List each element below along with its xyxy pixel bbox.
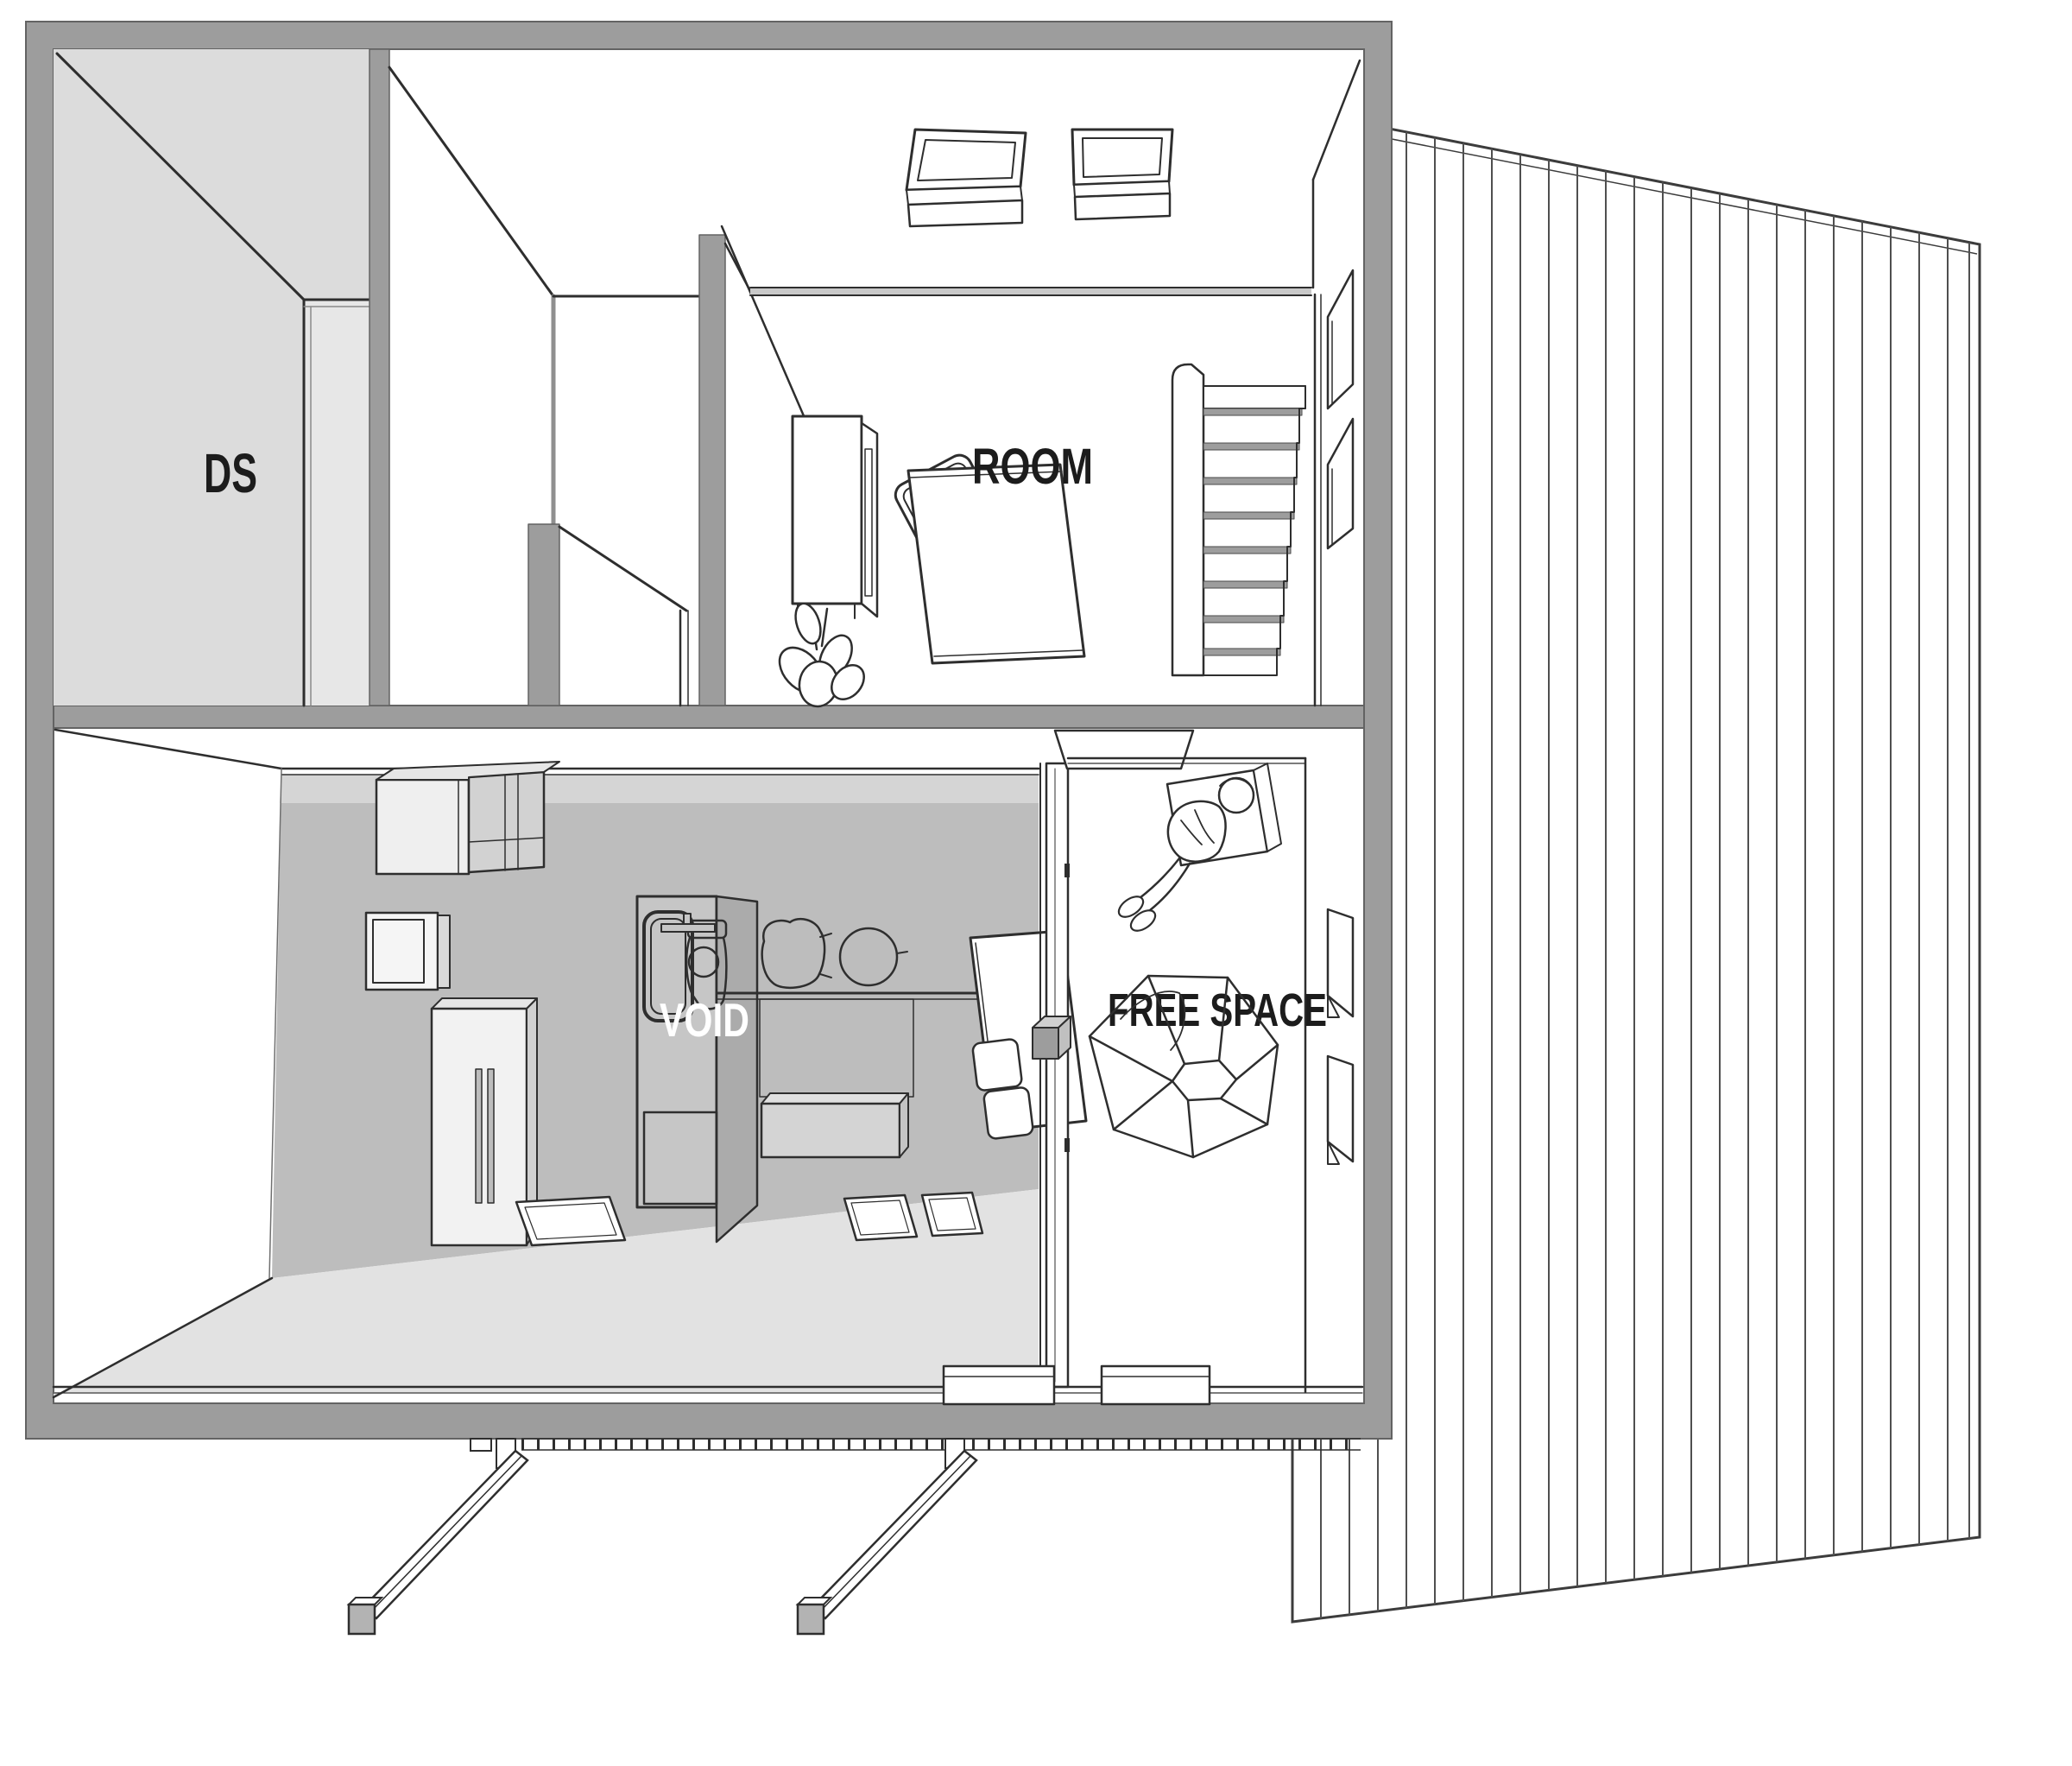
counter-drawer <box>761 1093 908 1157</box>
person-torso <box>1168 801 1226 862</box>
door-handle <box>1033 1016 1071 1059</box>
stair-rail <box>1172 364 1203 675</box>
floor-plan-drawing: ROOM DS <box>0 0 2072 1766</box>
wall-ds-divider <box>370 49 389 706</box>
desk <box>793 416 877 618</box>
wall-frame <box>366 913 450 990</box>
slatted-screen-wall <box>1292 110 1980 1622</box>
room-label-bedroom: ROOM <box>972 439 1093 495</box>
wall-cabinets <box>376 762 559 874</box>
support-leg-right <box>798 1451 976 1634</box>
room-label-void: VOID <box>660 993 749 1047</box>
room-label-ds: DS <box>204 442 257 504</box>
support-leg-left <box>349 1451 527 1634</box>
pillow <box>983 1086 1033 1139</box>
door-panel <box>1046 763 1068 1387</box>
skylight-right <box>1072 130 1172 219</box>
bathroom-unit: VOID <box>637 896 757 1242</box>
mid-floor-slab <box>54 706 1364 728</box>
leg-foot <box>349 1605 375 1634</box>
room-label-free-space: FREE SPACE <box>1108 984 1327 1036</box>
hall-door-wall <box>528 524 559 706</box>
ds-room <box>54 49 370 706</box>
floor-plan-canvas: ROOM DS <box>0 0 2072 1766</box>
pillow <box>972 1039 1022 1092</box>
leg-foot <box>798 1605 824 1634</box>
cabinet-handle <box>488 1069 494 1203</box>
cabinet-handle <box>476 1069 482 1203</box>
skylight-left <box>906 130 1026 226</box>
foundation <box>349 1439 1361 1634</box>
